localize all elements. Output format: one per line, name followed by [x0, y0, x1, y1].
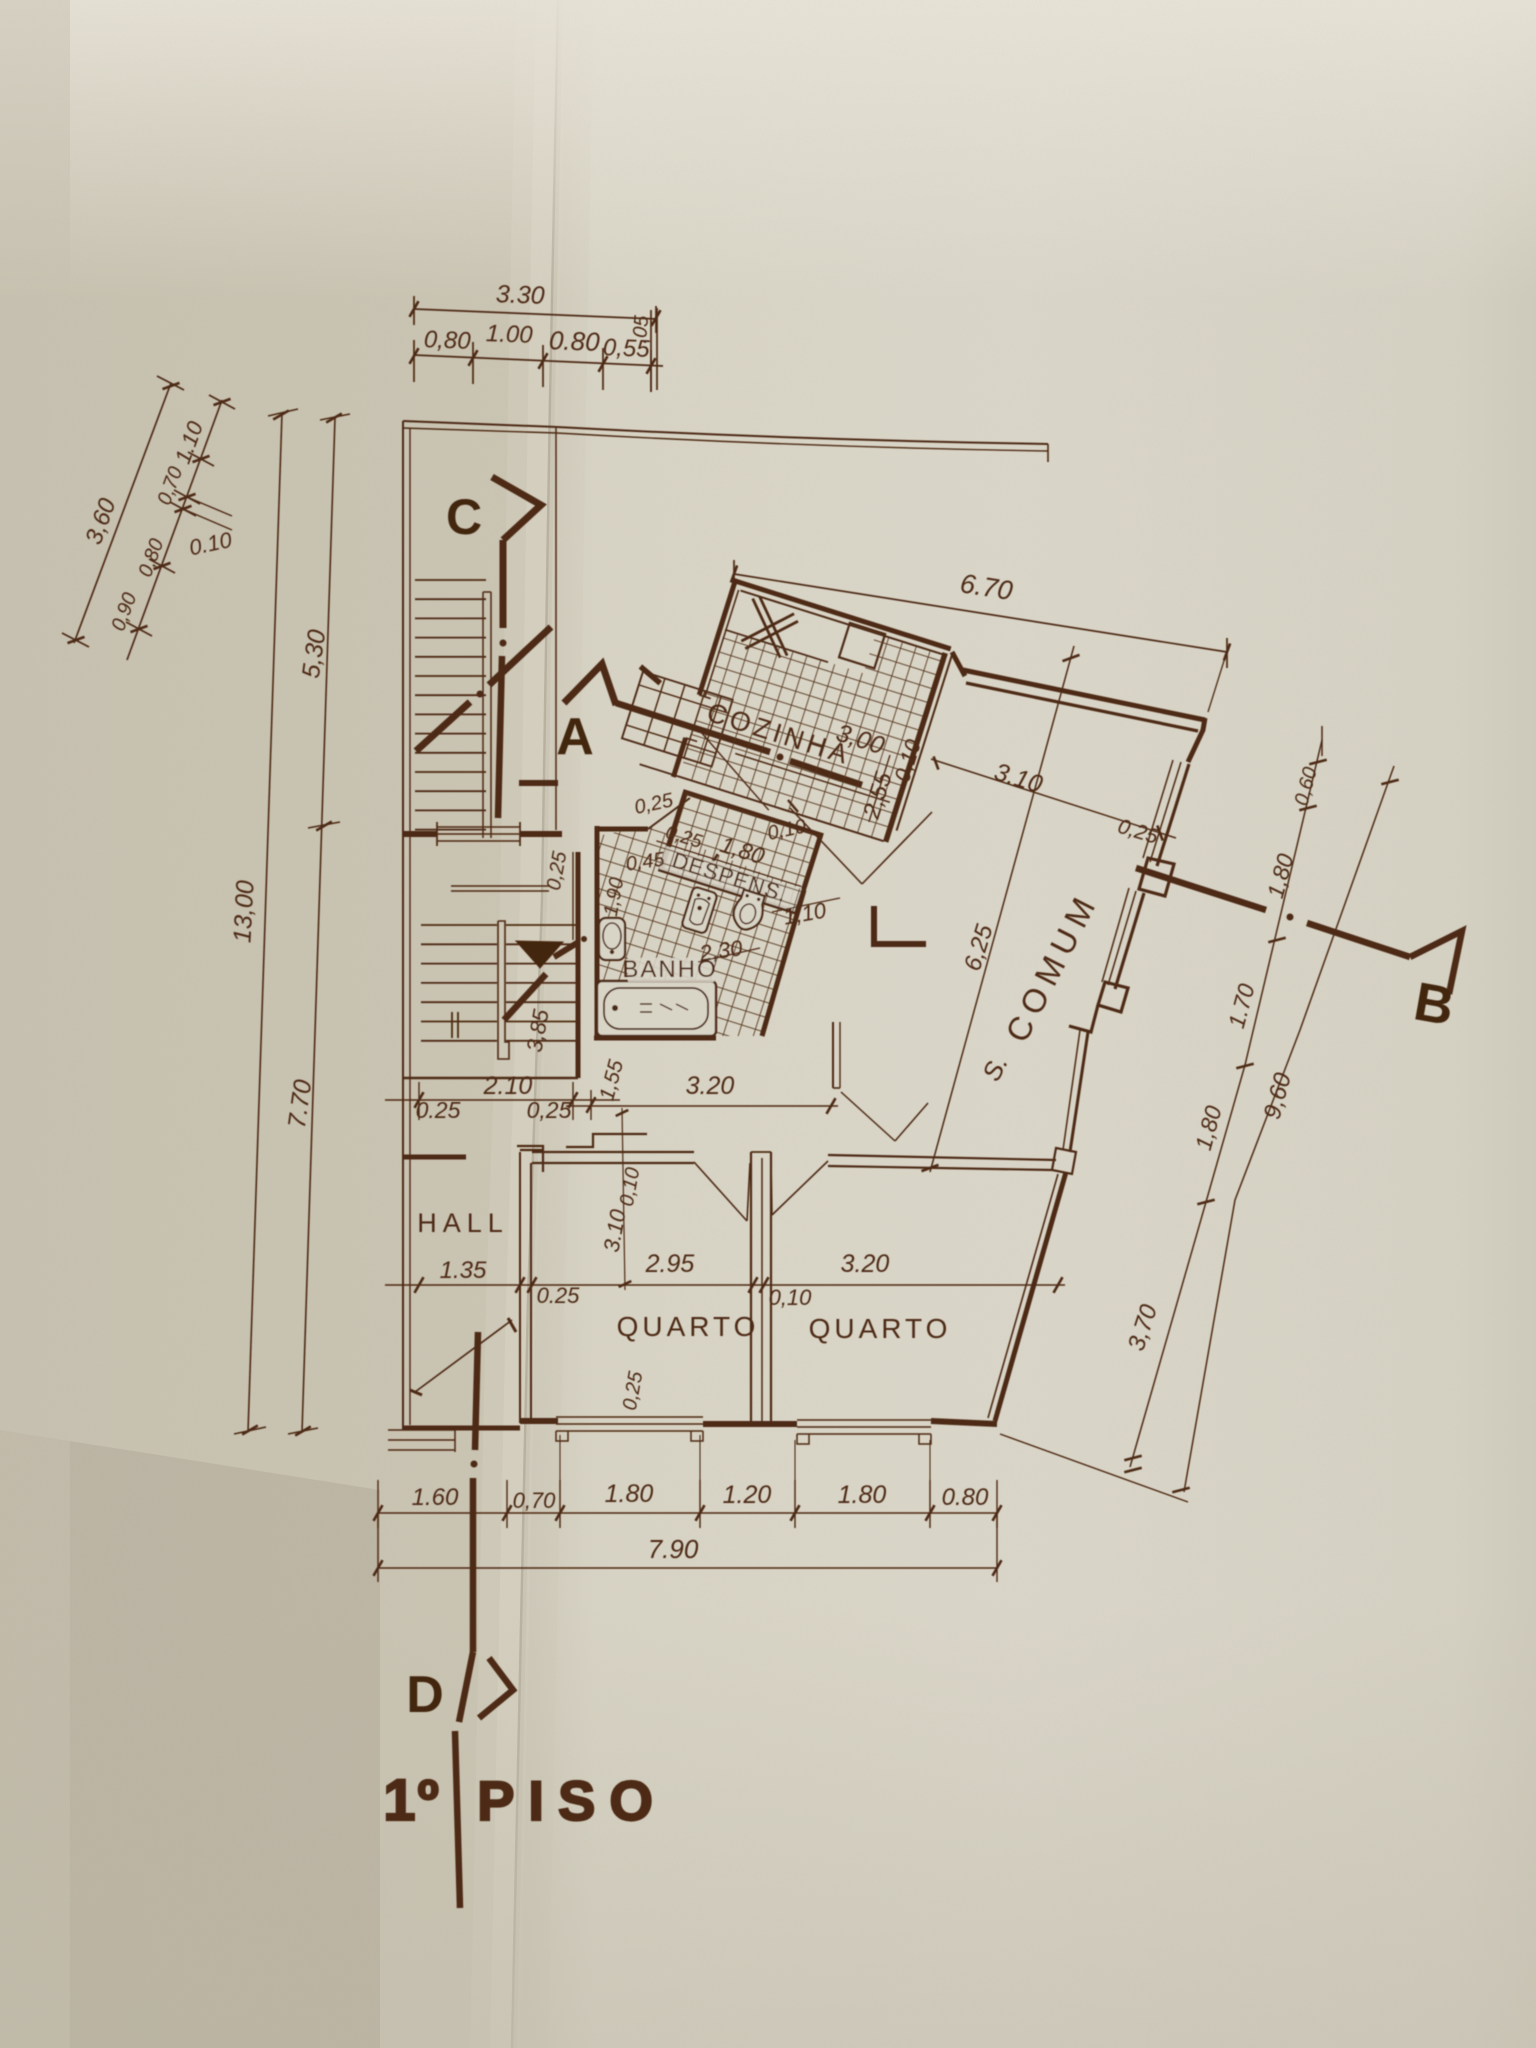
svg-text:QUARTO: QUARTO [617, 1311, 760, 1342]
svg-text:0.80: 0.80 [942, 1484, 989, 1511]
svg-text:13,00: 13,00 [228, 880, 259, 944]
svg-text:1.60: 1.60 [412, 1484, 459, 1511]
svg-text:HALL: HALL [417, 1208, 509, 1238]
svg-text:7.90: 7.90 [648, 1534, 699, 1564]
svg-text:0.25: 0.25 [537, 1283, 581, 1308]
svg-text:1.20: 1.20 [723, 1481, 772, 1509]
svg-text:2.10: 2.10 [483, 1072, 533, 1100]
svg-text:0,25: 0,25 [527, 1097, 572, 1123]
svg-text:3.20: 3.20 [686, 1072, 735, 1100]
svg-text:1.35: 1.35 [440, 1257, 487, 1284]
svg-text:0,70: 0,70 [513, 1488, 557, 1513]
svg-text:1.80: 1.80 [838, 1481, 887, 1509]
svg-text:0.80: 0.80 [549, 325, 601, 357]
svg-text:PISO: PISO [477, 1769, 667, 1832]
svg-text:0,80: 0,80 [423, 326, 471, 355]
svg-text:3.20: 3.20 [841, 1250, 890, 1278]
svg-text:.05: .05 [629, 314, 653, 344]
svg-text:D: D [406, 1666, 444, 1724]
svg-text:QUARTO: QUARTO [809, 1313, 952, 1344]
svg-text:1.80: 1.80 [605, 1480, 654, 1508]
svg-text:1º: 1º [383, 1768, 440, 1833]
svg-text:0,10: 0,10 [769, 1285, 813, 1310]
svg-text:0.25: 0.25 [416, 1097, 461, 1123]
svg-text:1.00: 1.00 [485, 320, 533, 349]
svg-text:2.95: 2.95 [645, 1250, 695, 1278]
svg-text:C: C [446, 489, 482, 545]
svg-text:3.30: 3.30 [495, 280, 545, 310]
svg-text:A: A [556, 708, 594, 766]
